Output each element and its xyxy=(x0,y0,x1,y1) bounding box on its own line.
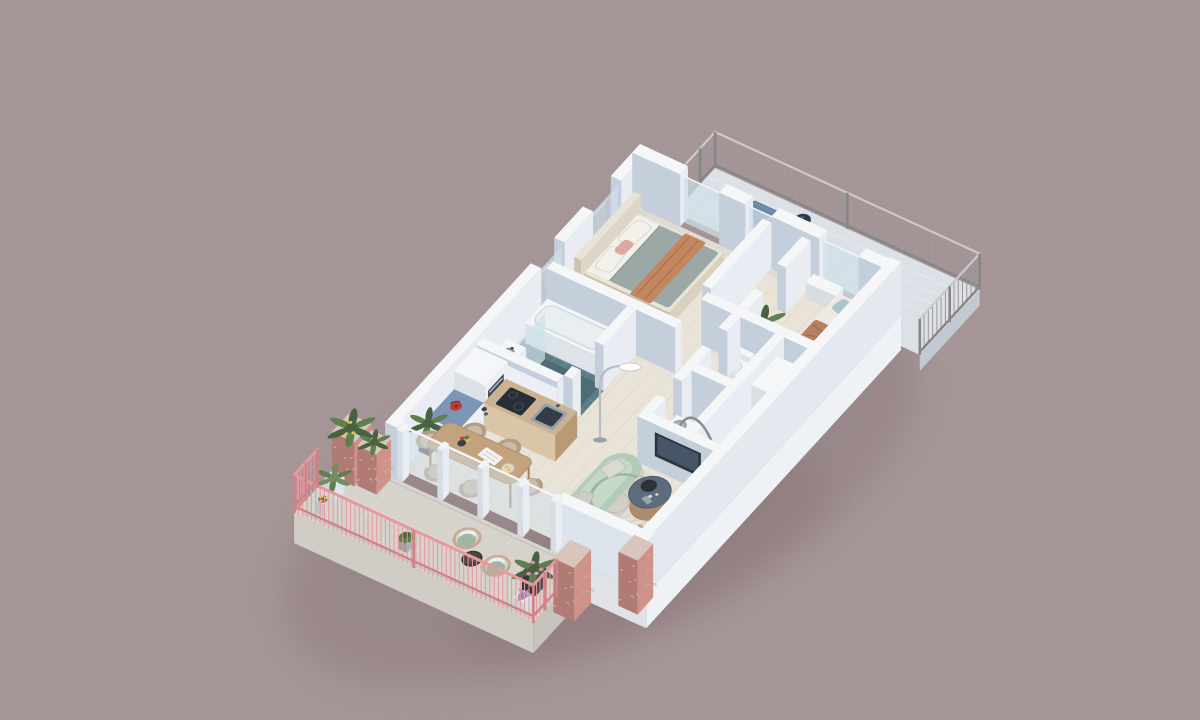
floorplan-render-stage xyxy=(0,0,1200,720)
wall-bed2-nw-1-face-sw xyxy=(777,264,786,314)
glass-balustrade-post-2-face-sw xyxy=(477,467,482,519)
glass-balustrade-post-0-face-se xyxy=(403,425,410,482)
arc-lamp-shade xyxy=(619,363,641,371)
arc-lamp-base xyxy=(593,437,607,442)
apartment-3d-floorplan xyxy=(0,0,1200,720)
glass-balustrade-post-1-face-se xyxy=(443,444,450,501)
glass-balustrade-post-0-face-sw xyxy=(397,430,402,482)
glass-balustrade-post-4-face-sw xyxy=(551,500,556,552)
glass-balustrade-post-3-face-se xyxy=(523,480,530,537)
glass-balustrade-post-1-face-sw xyxy=(437,448,442,500)
wall-bed-bath-face-se xyxy=(675,321,682,374)
brick-pillar-2-face-sw xyxy=(618,552,637,615)
glass-balustrade-post-4-face-se xyxy=(556,496,563,553)
glass-balustrade-post-2-face-se xyxy=(483,462,490,519)
wall-hall-center-1-face-sw xyxy=(719,327,728,377)
glass-balustrade-post-3-face-sw xyxy=(517,485,522,537)
